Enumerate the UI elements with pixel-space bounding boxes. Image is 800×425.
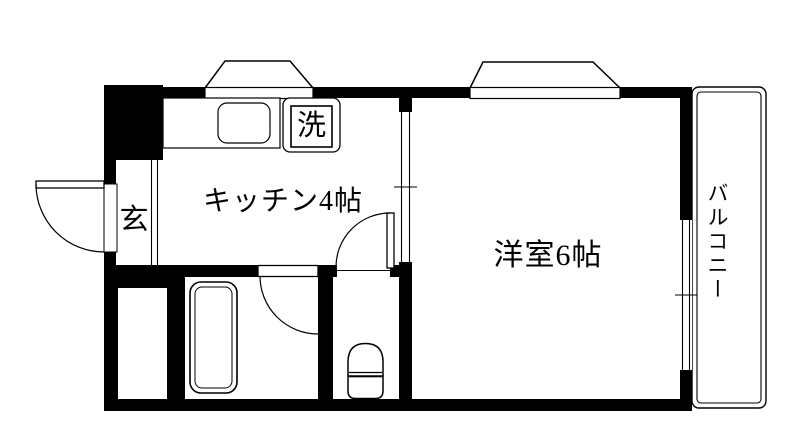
bathroom-door [258,266,318,335]
room-window-sill [470,88,620,99]
wall-kitchen-bottom-b [318,265,337,277]
wall-middle-lower [399,262,412,411]
kitchen-window-sill [205,88,313,99]
toilet-door-swing-arc [336,213,390,268]
entrance-door [36,181,117,252]
kitchen-label: キッチン4帖 [160,179,406,219]
bay-windows [205,61,620,88]
room-bay-window [470,62,620,88]
wall-left-upper [104,85,116,184]
sink [218,103,270,143]
wall-right-lower [680,370,692,411]
entrance-door-swing-arc [36,184,104,252]
toilet-door [336,213,394,276]
bathtub [190,282,237,393]
bathroom-door-panel [258,266,318,277]
bathroom-door-swing-arc [260,276,318,334]
entrance-label: 玄 [114,196,154,238]
wall-top-b [313,87,470,98]
western-room-label: 洋室6帖 [428,230,668,274]
balcony-sliding-window [675,220,697,370]
entrance-door-panel [36,181,104,188]
wall-bottom [104,399,692,411]
floor-plan-canvas: キッチン4帖 洋室6帖 玄 洗 バルコニー [0,0,800,425]
toilet-bowl [348,344,383,377]
toilet-tank [348,377,383,399]
toilet-fixture [348,344,383,399]
washer-label: 洗 [291,106,332,147]
kitchen-counter [163,98,280,148]
wall-storage-right [167,277,185,399]
wall-top-a [163,87,205,98]
wall-middle-top [399,87,412,112]
bathtub-outer [190,282,237,393]
balcony-label: バルコニー [704,182,732,327]
wall-bath-toilet [318,277,333,399]
wall-right-upper [680,87,692,220]
toilet-door-panel [387,213,394,268]
wall-kitchen-bottom-a [104,265,258,277]
wall-left-lower [104,277,118,411]
kitchen-bay-window [205,61,313,88]
